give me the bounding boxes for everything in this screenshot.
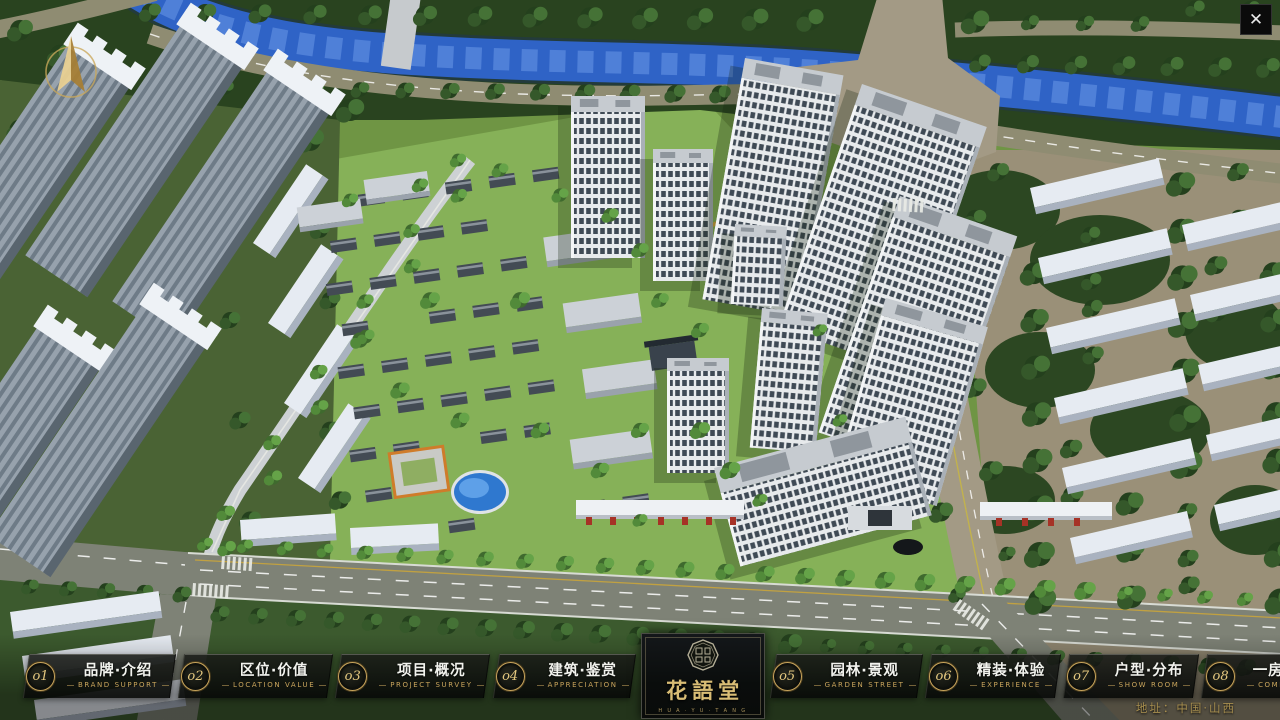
nav-label: 户型·分布 xyxy=(1115,663,1184,680)
nav-sublabel: APPRECIATION xyxy=(533,681,633,689)
nav-item-project-survey[interactable]: o3 项目·概况 PROJECT SURVEY xyxy=(338,654,487,698)
nav-item-floorplan-distribution[interactable]: o7 户型·分布 SHOW ROOM xyxy=(1066,654,1196,698)
bottom-navigation-bar: o1 品牌·介绍 BRAND SUPPORT o2 区位·价值 LOCATION… xyxy=(0,624,1280,720)
nav-item-location-value[interactable]: o2 区位·价值 LOCATION VALUE xyxy=(181,654,330,698)
seal-emblem-icon xyxy=(686,638,720,672)
nav-label: 建筑·鉴赏 xyxy=(548,663,617,680)
close-button[interactable]: ✕ xyxy=(1240,4,1272,35)
nav-sublabel: BRAND SUPPORT xyxy=(63,681,173,689)
compass-north-icon xyxy=(40,34,102,104)
nav-sublabel: GARDEN STREET xyxy=(810,681,920,689)
nav-number-badge: o7 xyxy=(1067,662,1096,691)
nav-label: 区位·价值 xyxy=(240,663,309,680)
project-address: 地址：中国·山西 xyxy=(1136,700,1236,716)
nav-label: 精装·体验 xyxy=(977,663,1046,680)
nav-label: 项目·概况 xyxy=(397,663,466,680)
nav-label: 园林·景观 xyxy=(830,663,899,680)
nav-sublabel: PROJECT SURVEY xyxy=(375,681,487,689)
nav-sublabel: SHOW ROOM xyxy=(1104,681,1195,689)
nav-number-badge: o4 xyxy=(496,662,525,691)
nav-item-interior-experience[interactable]: o6 精装·体验 EXPERIENCE xyxy=(928,654,1058,698)
pool xyxy=(451,470,509,514)
project-name: 花語堂 xyxy=(666,675,744,705)
nav-item-room-view[interactable]: o8 一房·一景 COMMUNITY xyxy=(1204,654,1280,698)
nav-sublabel: COMMUNITY xyxy=(1243,681,1280,689)
nav-sublabel: LOCATION VALUE xyxy=(218,681,330,689)
project-name-latin: H U A · Y U · T A N G xyxy=(658,708,747,714)
nav-label: 品牌·介绍 xyxy=(84,663,153,680)
nav-number-badge: o2 xyxy=(181,662,210,691)
nav-item-garden-landscape[interactable]: o5 园林·景观 GARDEN STREET xyxy=(773,654,920,698)
nav-number-badge: o5 xyxy=(773,662,802,691)
nav-number-badge: o8 xyxy=(1206,662,1235,691)
project-logo-panel[interactable]: 花語堂 H U A · Y U · T A N G xyxy=(641,633,765,719)
nav-label: 一房·一景 xyxy=(1253,663,1280,680)
nav-item-brand-intro[interactable]: o1 品牌·介绍 BRAND SUPPORT xyxy=(26,654,173,698)
nav-number-badge: o3 xyxy=(338,662,367,691)
kindergarten xyxy=(389,446,449,497)
nav-number-badge: o1 xyxy=(26,662,55,691)
nav-sublabel: EXPERIENCE xyxy=(966,681,1056,689)
nav-number-badge: o6 xyxy=(929,662,958,691)
close-icon: ✕ xyxy=(1249,10,1263,30)
masterplan-3d-render xyxy=(0,0,1280,720)
nav-item-architecture-appreciation[interactable]: o4 建筑·鉴赏 APPRECIATION xyxy=(496,654,633,698)
